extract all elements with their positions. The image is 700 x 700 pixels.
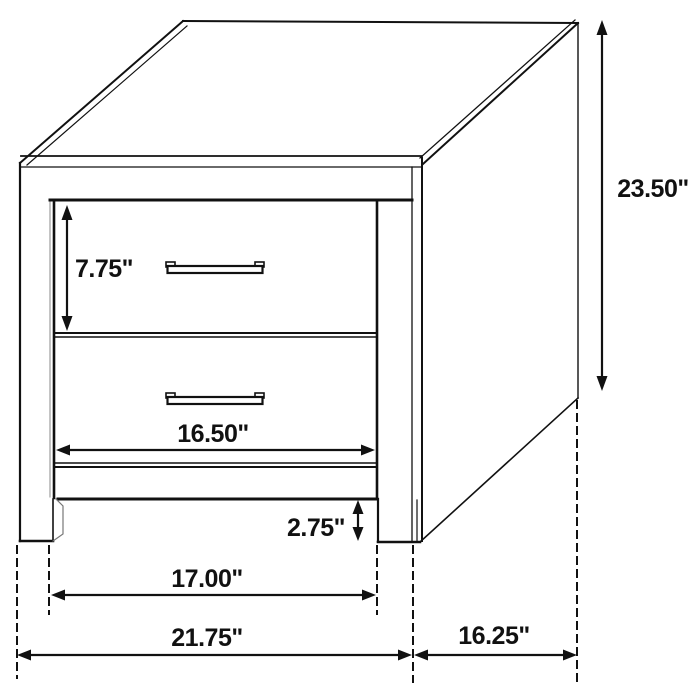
top-left-slant-edge-inner [27, 26, 187, 165]
overall-height-dimension-arrow [597, 20, 608, 391]
inner-leg-span-label: 17.00" [171, 565, 242, 593]
base-clearance-dimension-arrow [353, 500, 364, 541]
handle-bar-icon [168, 266, 263, 273]
side-panel-bottom-slant-edge [420, 398, 578, 542]
handle-bar-icon [168, 397, 263, 404]
overall-depth-label: 16.25" [458, 622, 529, 650]
diagram-svg: 7.75" 16.50" 23.50" 2.75" 17.00" 21.75" … [0, 0, 700, 700]
top-back-edge [183, 21, 578, 23]
drawer-height-label: 7.75" [75, 255, 133, 283]
base-clearance-label: 2.75" [287, 514, 345, 542]
overall-width-label: 21.75" [171, 624, 242, 652]
drawer-width-label: 16.50" [177, 420, 248, 448]
overall-height-label: 23.50" [617, 175, 688, 203]
drawer-height-dimension-arrow [62, 205, 73, 331]
top-left-slant-edge-outer [20, 21, 183, 163]
dimension-labels: 7.75" 16.50" 23.50" 2.75" 17.00" 21.75" … [75, 175, 689, 652]
dimension-arrows [17, 20, 608, 661]
top-drawer-handle [166, 262, 264, 273]
overall-depth-dimension-arrow [414, 650, 577, 661]
bottom-drawer-handle [166, 393, 264, 404]
nightstand-dimension-diagram: 7.75" 16.50" 23.50" 2.75" 17.00" 21.75" … [0, 0, 700, 700]
top-right-slant-edge-outer [420, 20, 575, 158]
left-leg-inner-face [53, 499, 63, 541]
top-right-slant-edge-inner [423, 23, 578, 164]
